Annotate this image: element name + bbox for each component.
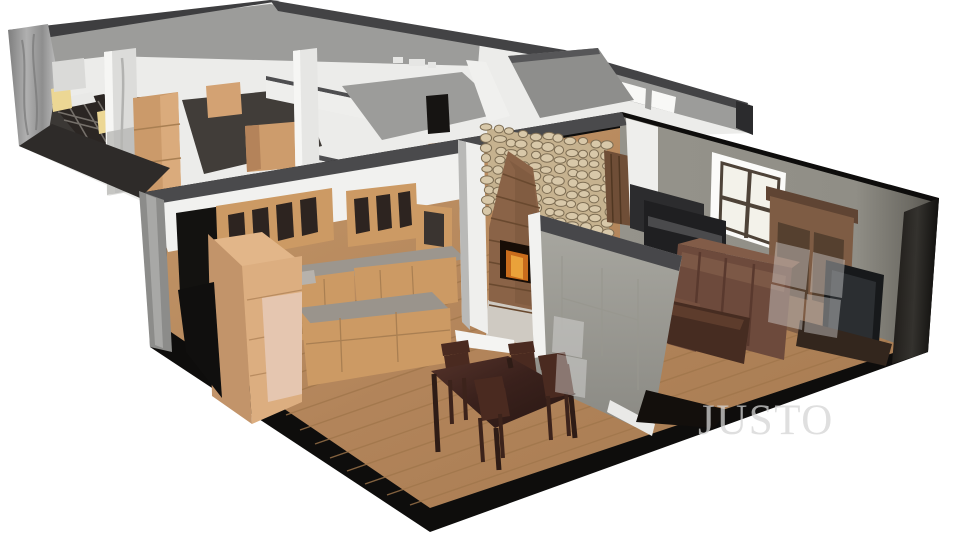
svg-text:JUSTO: JUSTO	[698, 397, 834, 444]
